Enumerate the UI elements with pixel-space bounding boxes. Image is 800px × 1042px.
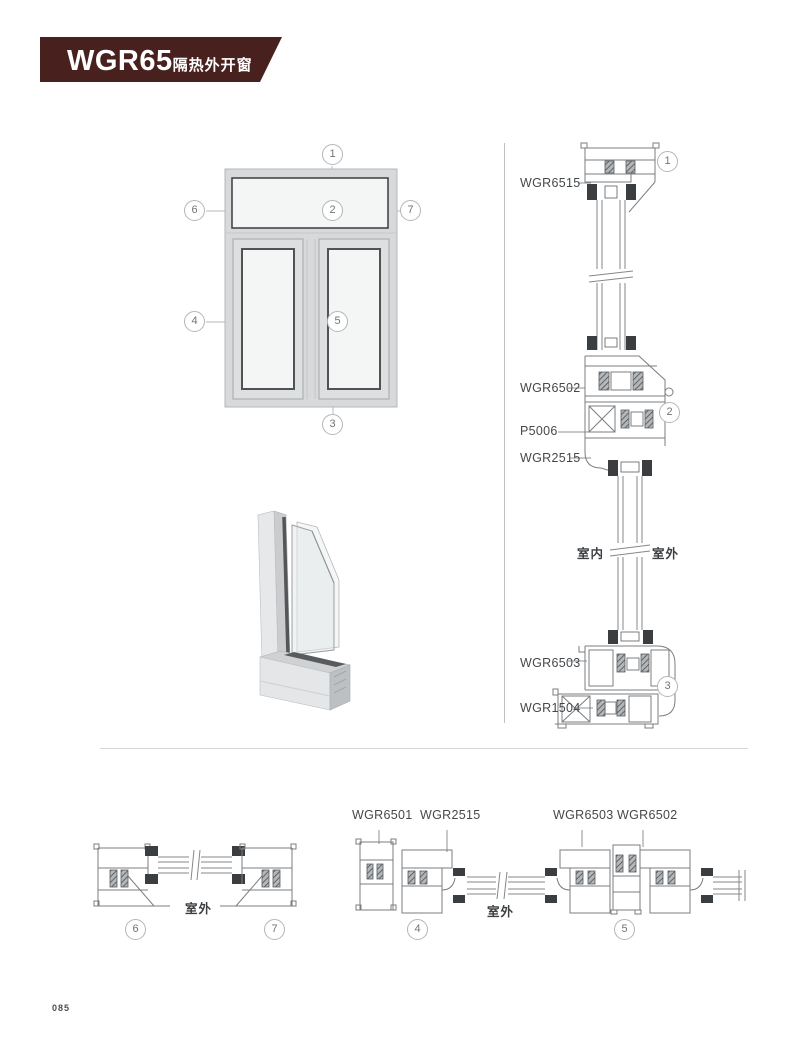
glass-pane-front <box>292 525 334 655</box>
right-jamb-profile <box>220 844 296 906</box>
catalog-page: WGR65隔热外开窗 <box>0 0 800 1042</box>
section-callout-5: 5 <box>614 919 635 940</box>
horizontal-rule <box>100 748 748 749</box>
section-callout-6: 6 <box>125 919 146 940</box>
bottom-profile-end <box>330 665 350 710</box>
glazing-gasket <box>145 874 158 884</box>
outdoor-label: 室外 <box>652 543 679 562</box>
elevation-callout-6: 6 <box>184 200 205 221</box>
part-label-wgr6502: WGR6502 <box>520 381 580 395</box>
corner-cutaway-illustration <box>250 505 365 715</box>
page-number: 085 <box>52 1003 70 1013</box>
page-subtitle: 隔热外开窗 <box>173 54 253 75</box>
casement-glazing-left <box>467 872 545 899</box>
jamb-profile <box>356 839 396 910</box>
transom-panel <box>232 178 388 228</box>
section-callout-2: 2 <box>659 402 680 423</box>
section-callout-4: 4 <box>407 919 428 940</box>
elevation-callout-5: 5 <box>327 311 348 332</box>
bottom-leader-lines <box>379 830 643 852</box>
indoor-label: 室内 <box>577 543 604 562</box>
part-label-wgr6515: WGR6515 <box>520 176 580 190</box>
window-elevation-drawing <box>160 140 440 440</box>
casement-glazing-right <box>713 870 745 901</box>
elevation-callout-2: 2 <box>322 200 343 221</box>
page-title: WGR65 <box>67 46 173 76</box>
vertical-section-drawing <box>505 140 800 740</box>
section-callout-7: 7 <box>264 919 285 940</box>
elevation-callout-1: 1 <box>322 144 343 165</box>
outdoor-label-bottom-left: 室外 <box>185 898 212 917</box>
section-callout-1: 1 <box>657 151 678 172</box>
part-label-wgr6503-bottom: WGR6503 <box>553 808 613 822</box>
part-label-wgr1504: WGR1504 <box>520 701 580 715</box>
header-banner: WGR65隔热外开窗 <box>40 37 282 82</box>
part-label-p5006: P5006 <box>520 424 558 438</box>
glazing-gasket <box>145 846 158 856</box>
part-label-wgr6501: WGR6501 <box>352 808 412 822</box>
elevation-callout-4: 4 <box>184 311 205 332</box>
section-leader-lines <box>558 183 593 708</box>
glazing-gasket <box>587 184 597 200</box>
elevation-callout-7: 7 <box>400 200 421 221</box>
part-label-wgr2515-bottom: WGR2515 <box>420 808 480 822</box>
fixed-glazing <box>158 850 232 880</box>
sash-profile-right <box>557 850 610 913</box>
left-jamb-profile <box>94 844 170 906</box>
meeting-stile-profile <box>611 845 641 914</box>
part-label-wgr2515: WGR2515 <box>520 451 580 465</box>
outdoor-label-bottom-right: 室外 <box>487 901 514 920</box>
part-label-wgr6502-bottom: WGR6502 <box>617 808 677 822</box>
section-callout-3: 3 <box>657 676 678 697</box>
part-label-wgr6503: WGR6503 <box>520 656 580 670</box>
glazing-gasket <box>626 184 636 200</box>
elevation-callout-3: 3 <box>322 414 343 435</box>
